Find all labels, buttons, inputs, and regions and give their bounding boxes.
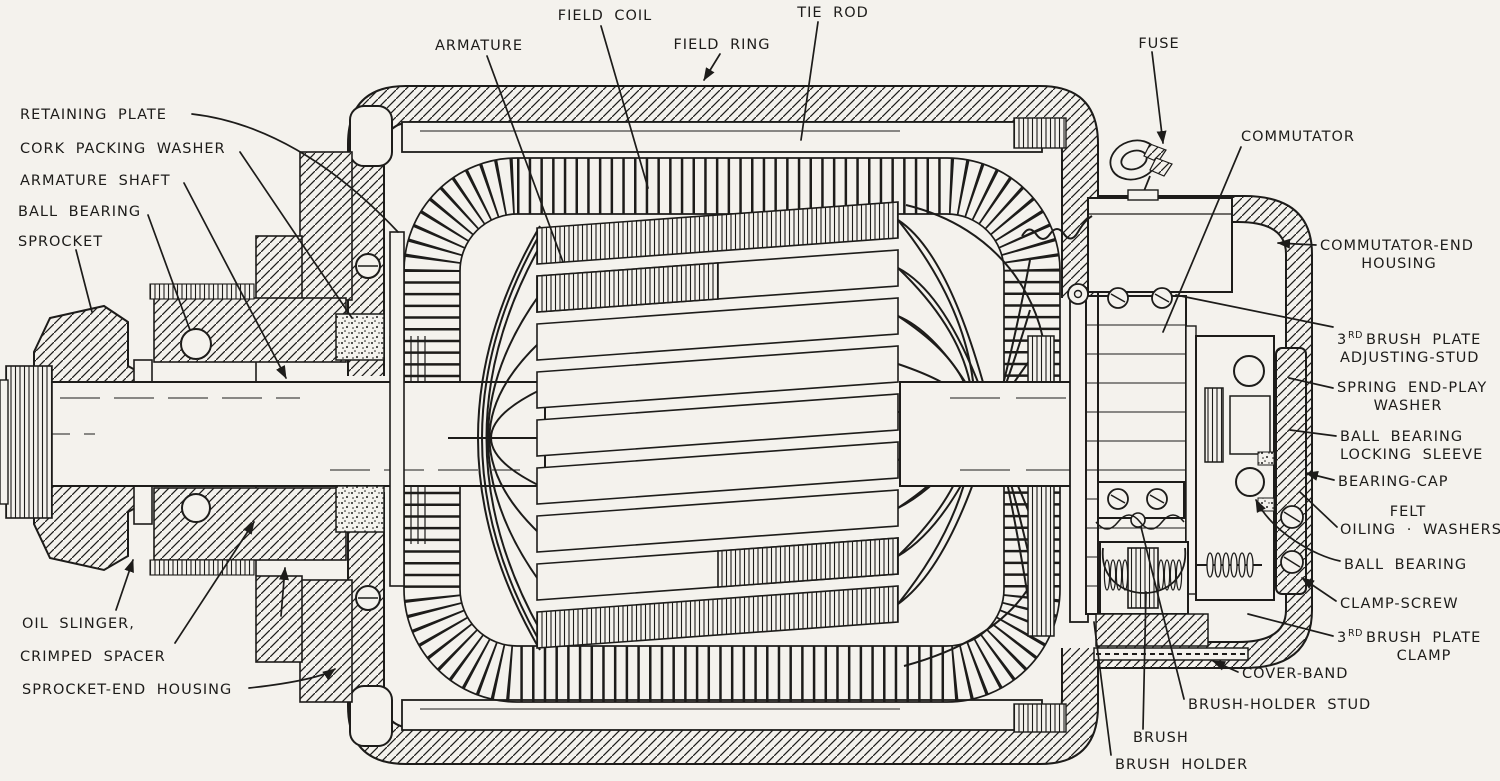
tie-rod-thread-top-right xyxy=(1014,118,1066,148)
retaining-plate-part xyxy=(390,232,404,586)
label-spring-end-play-1: SPRING END-PLAY xyxy=(1337,380,1487,396)
label-brush-plate-clamp-2: CLAMP xyxy=(1397,648,1452,664)
label-brush: BRUSH xyxy=(1133,730,1189,746)
label-commutator-end-housing-2: HOUSING xyxy=(1361,256,1437,272)
ball-bearing-right-lower xyxy=(1236,468,1264,496)
bearing-cap-screw xyxy=(1281,506,1303,528)
motor-cutaway-diagram: FIELD COIL TIE ROD ARMATURE FIELD RING F… xyxy=(0,0,1500,781)
label-adjusting-stud-rest: BRUSH PLATE xyxy=(1366,332,1481,348)
tie-rod-nut-bottom-left xyxy=(350,686,392,746)
label-locking-sleeve-2: LOCKING SLEEVE xyxy=(1340,447,1483,463)
leader-oil-slinger xyxy=(116,560,133,610)
label-armature-shaft: ARMATURE SHAFT xyxy=(20,173,171,189)
label-field-coil: FIELD COIL xyxy=(558,8,653,24)
clamp-screw-part xyxy=(1281,551,1303,573)
tie-rod-top xyxy=(402,122,1042,152)
terminal-lug xyxy=(1068,284,1088,304)
label-locking-sleeve-1: BALL BEARING xyxy=(1340,429,1463,445)
label-adjusting-stud-sup: RD xyxy=(1348,330,1363,341)
label-adjusting-stud-num: 3 xyxy=(1337,332,1347,348)
leader-fuse xyxy=(1152,52,1163,143)
label-ball-bearing-left: BALL BEARING xyxy=(18,204,141,220)
label-tie-rod: TIE ROD xyxy=(796,5,869,21)
thread-band-bottom xyxy=(150,560,254,575)
terminal-bracket xyxy=(1088,198,1232,292)
label-felt-1: FELT xyxy=(1390,504,1426,520)
label-brush-holder-stud: BRUSH-HOLDER STUD xyxy=(1188,697,1371,713)
label-sprocket-end-housing: SPROCKET-END HOUSING xyxy=(22,682,232,698)
label-cover-band: COVER-BAND xyxy=(1242,666,1348,682)
leader-sprocket xyxy=(76,250,92,312)
label-field-ring: FIELD RING xyxy=(673,37,770,53)
label-brush-plate-clamp-sup: RD xyxy=(1348,628,1363,639)
leader-field-ring xyxy=(704,54,720,80)
label-cork-packing-washer: CORK PACKING WASHER xyxy=(20,141,226,157)
label-retaining-plate: RETAINING PLATE xyxy=(20,107,167,123)
bearing-race-box xyxy=(1230,396,1270,454)
housing-screw-top xyxy=(356,254,380,278)
shaft-thread-stub xyxy=(6,366,52,518)
bracket-screw-right xyxy=(1152,288,1172,308)
tie-rod-bottom xyxy=(402,700,1042,730)
label-ball-bearing-right: BALL BEARING xyxy=(1344,557,1467,573)
ball-bearing-left-upper xyxy=(181,329,211,359)
cork-washer-bottom xyxy=(336,486,384,532)
figure-page: FIELD COIL TIE ROD ARMATURE FIELD RING F… xyxy=(0,0,1500,781)
locking-sleeve-part xyxy=(1205,388,1223,462)
armature-core xyxy=(537,202,898,648)
tie-rod-thread-bottom-right xyxy=(1014,704,1066,732)
label-sprocket: SPROCKET xyxy=(18,234,103,250)
label-brush-plate-clamp-num: 3 xyxy=(1337,630,1347,646)
label-spring-end-play-2: WASHER xyxy=(1374,398,1443,414)
label-commutator: COMMUTATOR xyxy=(1241,129,1355,145)
label-armature: ARMATURE xyxy=(435,38,523,54)
label-fuse: FUSE xyxy=(1138,36,1179,52)
right-bearing-assembly xyxy=(1196,336,1306,600)
label-oil-slinger: OIL SLINGER, xyxy=(22,616,135,632)
ball-bearing-right-upper xyxy=(1234,356,1264,386)
tie-rod-nut-top-left xyxy=(350,106,392,166)
label-crimped-spacer: CRIMPED SPACER xyxy=(20,649,166,665)
label-felt-2: OILING · WASHERS xyxy=(1340,522,1500,538)
bracket-screw-left xyxy=(1108,288,1128,308)
felt-washer-upper xyxy=(1258,452,1274,465)
brush-plate-screw-left xyxy=(1108,489,1128,509)
cork-washer-top xyxy=(336,314,384,360)
label-adjusting-stud-2: ADJUSTING-STUD xyxy=(1340,350,1479,366)
label-clamp-screw: CLAMP-SCREW xyxy=(1340,596,1459,612)
label-bearing-cap: BEARING-CAP xyxy=(1338,474,1448,490)
label-brush-holder: BRUSH HOLDER xyxy=(1115,757,1248,773)
label-brush-plate-clamp-rest: BRUSH PLATE xyxy=(1366,630,1481,646)
label-commutator-end-housing-1: COMMUTATOR-END xyxy=(1320,238,1474,254)
brush-plate-screw-right xyxy=(1147,489,1167,509)
housing-screw-bottom xyxy=(356,586,380,610)
ball-bearing-left-lower xyxy=(182,494,210,522)
